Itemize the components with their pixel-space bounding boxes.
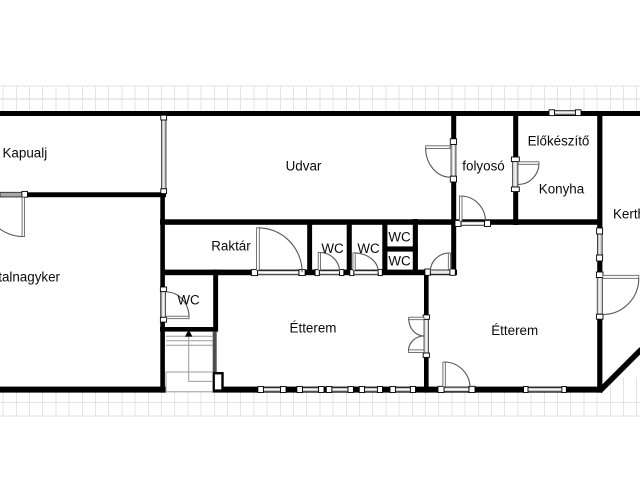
svg-text:Kerthelyiség: Kerthelyiség xyxy=(613,207,640,222)
svg-text:Udvar: Udvar xyxy=(286,158,322,173)
svg-text:WC: WC xyxy=(321,241,344,256)
svg-text:WC: WC xyxy=(388,254,411,269)
svg-text:WC: WC xyxy=(388,230,411,245)
svg-text:WC: WC xyxy=(357,241,380,256)
svg-text:Étterem: Étterem xyxy=(290,321,337,336)
svg-text:Előkészítő: Előkészítő xyxy=(528,133,590,148)
svg-text:WC: WC xyxy=(177,293,200,308)
svg-text:Raktár: Raktár xyxy=(211,239,251,254)
svg-text:Italnagyker: Italnagyker xyxy=(0,270,61,285)
svg-text:folyosó: folyosó xyxy=(462,159,504,174)
svg-text:Kapualj: Kapualj xyxy=(3,146,48,161)
svg-text:Étterem: Étterem xyxy=(491,323,538,338)
svg-text:Konyha: Konyha xyxy=(539,182,585,197)
